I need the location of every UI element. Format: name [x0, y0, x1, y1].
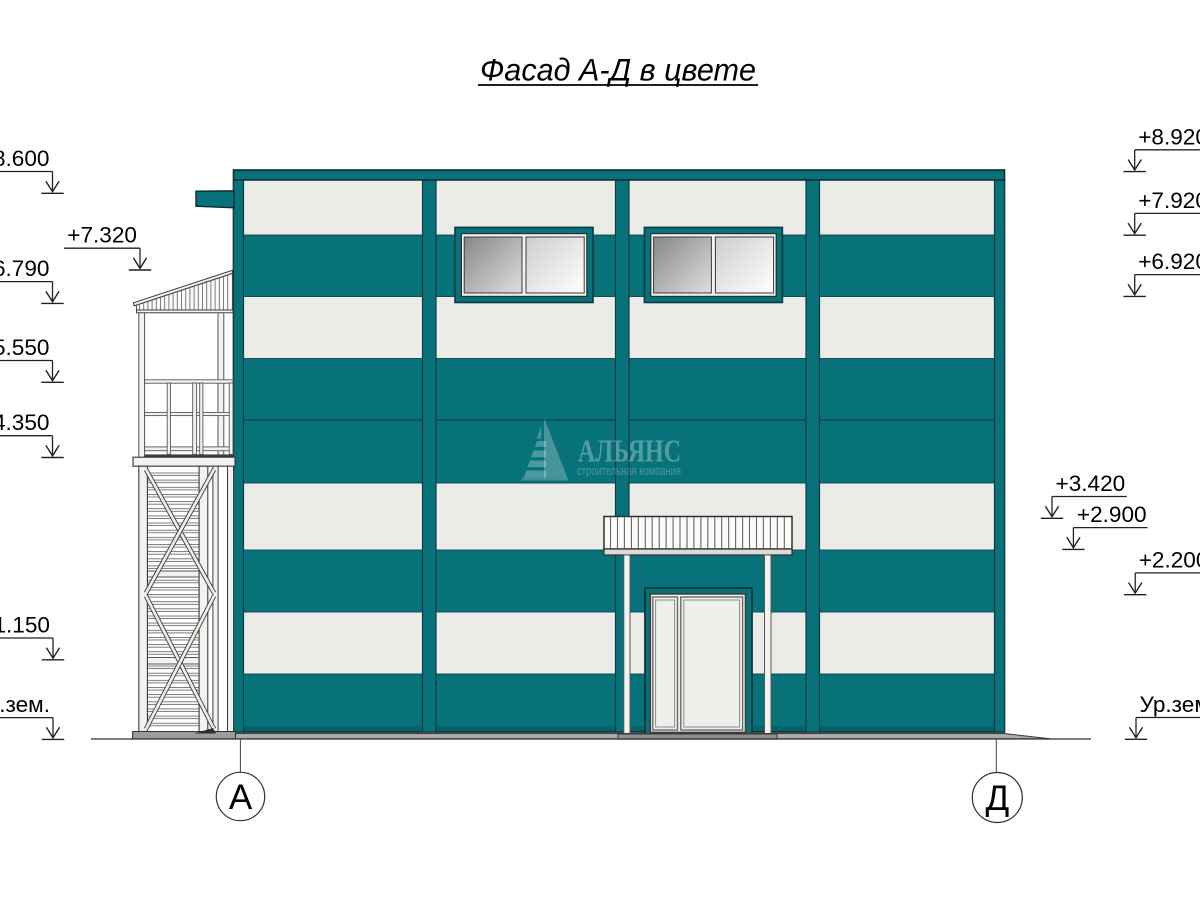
svg-text:+6.790: +6.790: [0, 256, 50, 281]
svg-text:Ур.зем.: Ур.зем.: [1140, 692, 1200, 717]
svg-text:+5.550: +5.550: [0, 335, 50, 360]
svg-text:Фасад А-Д в цвете: Фасад А-Д в цвете: [480, 52, 756, 88]
svg-text:строительная компания: строительная компания: [577, 463, 681, 478]
svg-text:+8.600: +8.600: [0, 146, 50, 171]
svg-text:+7.320: +7.320: [67, 223, 137, 248]
svg-text:+2.200: +2.200: [1139, 547, 1200, 572]
svg-text:+4.350: +4.350: [0, 410, 50, 435]
svg-text:А: А: [229, 778, 253, 817]
svg-text:Ур.зем.: Ур.зем.: [0, 692, 50, 717]
svg-text:+1.150: +1.150: [0, 613, 50, 638]
svg-text:+6.920: +6.920: [1138, 249, 1200, 274]
svg-text:+3.420: +3.420: [1056, 471, 1126, 496]
svg-text:+8.920: +8.920: [1138, 124, 1200, 149]
svg-text:+7.920: +7.920: [1138, 188, 1200, 213]
svg-text:+2.900: +2.900: [1077, 502, 1147, 527]
svg-text:Д: Д: [985, 779, 1009, 818]
